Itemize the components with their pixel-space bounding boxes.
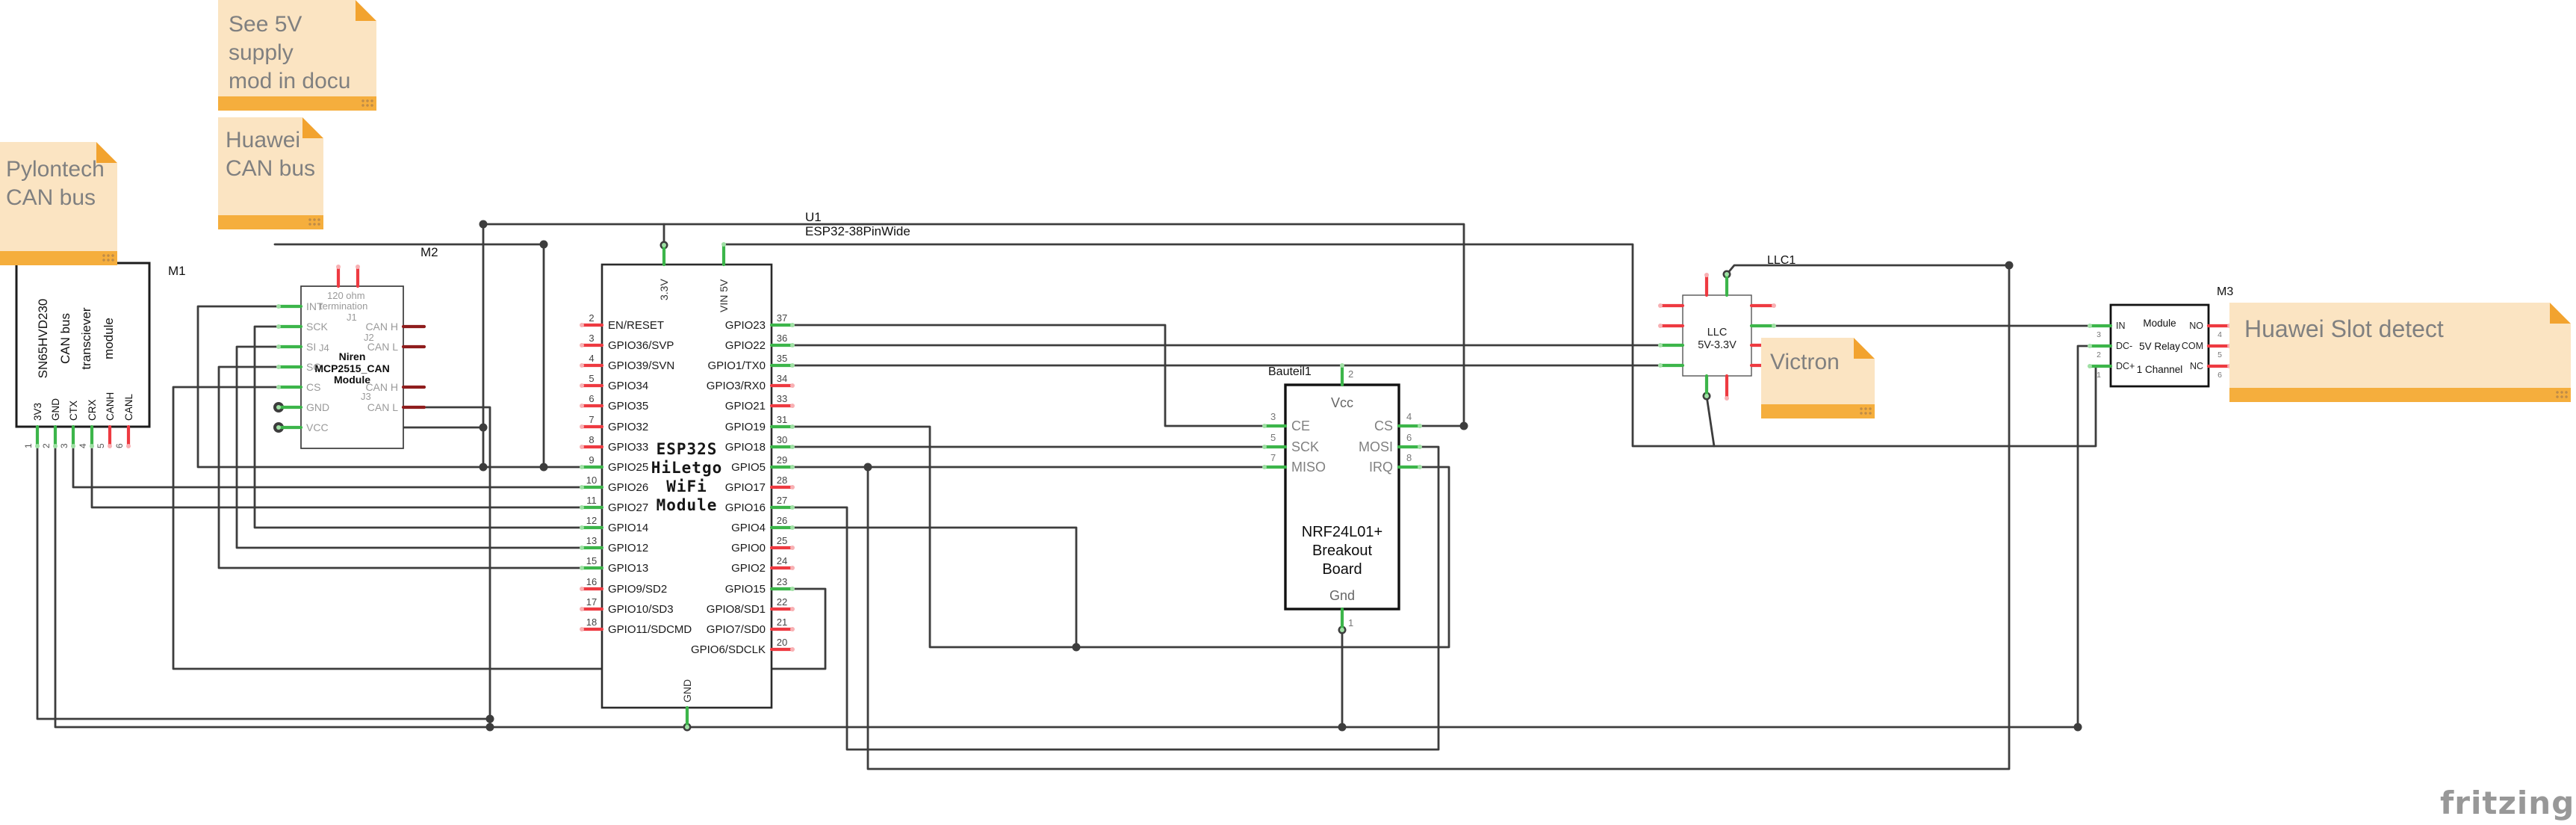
u1-pin-label: GPIO1/TX0 <box>707 359 766 372</box>
resize-grip-icon[interactable] <box>102 253 114 263</box>
u1-pin-label: GPIO2 <box>731 562 766 575</box>
pin-cap <box>35 444 40 448</box>
pin-cap <box>580 485 584 489</box>
wire-junction[interactable] <box>479 463 488 472</box>
u1-title: ESP32S HiLetgo WiFi Module <box>602 440 772 515</box>
u1-designator[interactable]: U1 <box>805 210 822 225</box>
pin-cap <box>1658 343 1663 347</box>
pin-cap <box>790 485 795 489</box>
pin-cap <box>356 265 360 269</box>
m3-designator[interactable]: M3 <box>2217 285 2233 299</box>
pin-cap <box>580 627 584 631</box>
m2-j1-label: J1 <box>347 312 357 323</box>
wire-junction[interactable] <box>864 463 872 472</box>
m1-pin-number: 2 <box>41 443 52 448</box>
pin-cap <box>790 404 795 408</box>
note-slot-detect-text: Huawei Slot detect <box>2229 303 2571 355</box>
pin-cap <box>790 546 795 550</box>
u1-pin-label: GPIO9/SD2 <box>608 583 667 596</box>
u1-pin-label: VIN 5V <box>718 279 730 312</box>
pin-cap <box>1725 396 1729 401</box>
pin-cap <box>1772 324 1776 328</box>
pin-cap <box>580 607 584 611</box>
u1-pin-number: 2 <box>589 312 594 324</box>
pin-cap <box>53 444 58 448</box>
nrf-pin-label: MOSI <box>1359 439 1393 454</box>
pin-cap <box>580 525 584 530</box>
pin-cap <box>790 627 795 631</box>
pin-cap <box>276 425 281 430</box>
m3-pin-number: 5 <box>2217 350 2222 359</box>
u1-pin-number: 22 <box>777 596 787 608</box>
u1-pin-number: 31 <box>777 414 787 425</box>
wire-junction[interactable] <box>2005 262 2014 270</box>
m2-termination-label: termination <box>320 300 367 312</box>
pin-cap <box>580 566 584 570</box>
pin-cap <box>2088 364 2092 368</box>
pin-cap <box>790 424 795 429</box>
u1-pin-number: 9 <box>589 454 594 466</box>
resize-grip-icon[interactable] <box>308 217 320 227</box>
pin-cap <box>1772 303 1776 308</box>
note-bar <box>0 251 117 265</box>
nrf-designator[interactable]: Bauteil1 <box>1268 365 1312 379</box>
u1-pin-label: GPIO34 <box>608 380 648 392</box>
nrf-title: NRF24L01+ Breakout Board <box>1285 523 1399 579</box>
m2-termination-value: 120 ohm <box>327 290 365 301</box>
u1-pin-number: 20 <box>777 637 787 648</box>
m1-pin-label: CANL <box>123 393 134 421</box>
wire-junction[interactable] <box>486 715 494 723</box>
pin-cap <box>580 343 584 347</box>
u1-pin-label: GPIO23 <box>725 319 766 332</box>
m1-pin-number: 1 <box>23 443 34 448</box>
u1-pin-label: GPIO36/SVP <box>608 339 674 352</box>
m1-pin-number: 4 <box>78 443 88 448</box>
pin-cap <box>276 385 281 389</box>
pin-cap <box>580 363 584 368</box>
pin-cap <box>1658 363 1663 368</box>
wire[interactable] <box>92 446 582 507</box>
nrf-pin-label: SCK <box>1291 439 1319 454</box>
nrf-pin-label: Gnd <box>1329 588 1355 603</box>
pin-cap <box>336 265 341 269</box>
pin-cap <box>790 647 795 652</box>
note-victron[interactable]: Victron <box>1761 338 1875 418</box>
pin-cap <box>276 344 281 349</box>
u1-pin-label: GPIO22 <box>725 339 766 352</box>
pin-cap <box>580 323 584 327</box>
m1-pin-number: 6 <box>114 443 125 448</box>
u1-pin-label: GPIO4 <box>731 522 766 534</box>
pin-cap <box>580 383 584 388</box>
note-supply-text: See 5V supply mod in docu <box>218 0 376 106</box>
pin-cap <box>790 525 795 530</box>
pin-cap <box>790 465 795 469</box>
fritzing-logo: fritzing <box>2440 785 2575 821</box>
pin-cap <box>790 383 795 388</box>
wire-junction[interactable] <box>486 723 494 732</box>
u1-pin-number: 3 <box>589 333 594 344</box>
pin-cap <box>108 444 112 448</box>
u1-pin-number: 29 <box>777 454 787 466</box>
pin-cap <box>1418 445 1422 449</box>
u1-pin-number: 37 <box>777 312 787 324</box>
pin-cap <box>790 505 795 510</box>
pin-cap <box>1340 628 1344 632</box>
pin-cap <box>790 607 795 611</box>
pin-cap <box>1418 424 1422 428</box>
pin-cap <box>790 445 795 449</box>
u1-pin-number: 8 <box>589 434 594 445</box>
nrf-pin-number: 8 <box>1406 452 1412 463</box>
u1-pin-number: 5 <box>589 373 594 384</box>
pin-cap <box>580 505 584 510</box>
m1-designator[interactable]: M1 <box>168 264 186 279</box>
resize-grip-icon[interactable] <box>2555 390 2568 400</box>
u1-pin-label: GPIO3/RX0 <box>707 380 766 392</box>
llc-designator[interactable]: LLC1 <box>1767 254 1796 268</box>
pin-cap <box>580 587 584 591</box>
pin-cap <box>790 343 795 347</box>
nrf-pin-number: 2 <box>1348 368 1353 380</box>
u1-pin-number: 23 <box>777 576 787 587</box>
nrf-pin-label: CS <box>1374 418 1393 433</box>
u1-pin-label: GPIO6/SDCLK <box>691 643 766 656</box>
pin-cap <box>1262 424 1267 428</box>
pin-cap <box>580 546 584 550</box>
u1-pin-number: 35 <box>777 353 787 364</box>
nrf-pin-label: Vcc <box>1331 395 1353 410</box>
pin-cap <box>276 304 281 309</box>
m2-part-name: Niren MCP2515_CAN Module <box>301 351 403 386</box>
pin-cap <box>790 323 795 327</box>
pin-cap <box>685 725 689 729</box>
note-bar <box>1761 404 1875 418</box>
nrf-pin-number: 4 <box>1406 411 1412 422</box>
m2-j3-label: J3 <box>361 391 371 402</box>
wire-junction[interactable] <box>1460 422 1468 430</box>
note-pylontech[interactable]: Pylontech CAN bus <box>0 142 117 265</box>
u1-pin-number: 7 <box>589 414 594 425</box>
pin-cap <box>721 242 726 247</box>
llc-title: LLC 5V-3.3V <box>1683 327 1751 352</box>
nrf-pin-number: 5 <box>1270 432 1276 443</box>
m2-designator[interactable]: M2 <box>420 245 438 260</box>
pin-cap <box>1340 363 1344 368</box>
m1-title-line4: module <box>102 268 117 410</box>
pin-cap <box>790 587 795 591</box>
u1-pin-label: 3.3V <box>658 279 670 300</box>
m2-j2-label: J2 <box>364 332 374 343</box>
pin-cap <box>790 566 795 570</box>
pin-cap <box>1418 465 1422 469</box>
nrf-pin-label: CE <box>1291 418 1310 433</box>
u1-pin-number: 28 <box>777 475 787 486</box>
note-slot-detect[interactable]: Huawei Slot detect <box>2229 303 2571 402</box>
note-bar <box>218 215 323 229</box>
u1-pin-label: GPIO13 <box>608 562 648 575</box>
u1-pin-label: GPIO35 <box>608 400 648 412</box>
u1-pin-number: 17 <box>586 596 597 608</box>
note-supply[interactable]: See 5V supply mod in docu <box>218 0 376 111</box>
m1-title-line3: transciever <box>79 268 94 410</box>
u1-pin-number: 12 <box>586 515 597 526</box>
m2-pin-label: CAN H <box>365 321 398 333</box>
pin-cap <box>276 365 281 369</box>
wire-junction[interactable] <box>540 241 548 249</box>
u1-pin-number: 34 <box>777 373 787 384</box>
u1-pin-number: 15 <box>586 555 597 566</box>
m1-title-line1: SN65HVD230 <box>36 268 51 410</box>
wire-junction[interactable] <box>479 220 488 229</box>
wire-junction[interactable] <box>2074 723 2082 732</box>
pin-cap <box>790 363 795 368</box>
pin-cap <box>580 404 584 408</box>
u1-part-name: ESP32-38PinWide <box>805 224 910 239</box>
u1-pin-number: 33 <box>777 393 787 404</box>
pin-cap <box>1262 465 1267 469</box>
resize-grip-icon[interactable] <box>361 99 373 108</box>
nrf-pin-number: 1 <box>1348 617 1353 628</box>
u1-pin-number: 25 <box>777 535 787 546</box>
pin-cap <box>580 465 584 469</box>
pin-cap <box>2088 344 2092 348</box>
pin-cap <box>1704 273 1709 277</box>
u1-pin-label: GPIO7/SD0 <box>707 623 766 636</box>
nrf-pin-label: IRQ <box>1369 460 1393 475</box>
m1-title-line2: CAN bus <box>58 268 73 410</box>
wire[interactable] <box>792 528 1076 647</box>
pin-cap <box>276 405 281 410</box>
u1-pin-label: EN/RESET <box>608 319 664 332</box>
pin-cap <box>90 444 94 448</box>
u1-pin-number: 21 <box>777 617 787 628</box>
wire-junction[interactable] <box>1338 723 1347 732</box>
u1-pin-number: 16 <box>586 576 597 587</box>
pin-cap <box>71 444 75 448</box>
u1-pin-number: 26 <box>777 515 787 526</box>
m2-pin-label: VCC <box>306 421 329 433</box>
u1-pin-number: 30 <box>777 434 787 445</box>
wire[interactable] <box>1707 396 1714 446</box>
wire[interactable] <box>792 325 1264 426</box>
note-bar <box>218 96 376 111</box>
m3-title: Module 5V Relay 1 Channel <box>2121 312 2198 381</box>
pin-cap <box>1658 303 1663 308</box>
m2-pin-label: GND <box>306 401 329 413</box>
m3-pin-number: 3 <box>2097 330 2101 339</box>
m3-pin-number: 2 <box>2097 350 2101 359</box>
pin-cap <box>580 424 584 429</box>
wire-junction[interactable] <box>540 463 548 472</box>
nrf-pin-number: 7 <box>1270 452 1276 463</box>
schematic-canvas: 3V31GND2CTX3CRX4CANH5CANL6INTSCKSISOCSGN… <box>0 0 2576 825</box>
u1-pin-number: 4 <box>589 353 594 364</box>
m2-pin-label: SCK <box>306 321 328 333</box>
m3-pin-number: 1 <box>2097 371 2101 380</box>
u1-pin-number: 36 <box>777 333 787 344</box>
m2-pin-label: CAN L <box>367 401 398 413</box>
u1-pin-number: 10 <box>586 475 597 486</box>
u1-pin-label: GPIO19 <box>725 421 766 433</box>
nrf-pin-number: 3 <box>1270 411 1276 422</box>
pin-cap <box>1658 324 1663 328</box>
pin-cap <box>1704 394 1709 398</box>
wire-junction[interactable] <box>479 424 488 432</box>
u1-pin-number: 13 <box>586 535 597 546</box>
pin-cap <box>662 243 666 247</box>
pin-cap <box>1725 272 1729 276</box>
u1-pin-label: GPIO0 <box>731 542 766 554</box>
u1-pin-label: GPIO8/SD1 <box>707 603 766 616</box>
u1-pin-number: 11 <box>586 495 597 506</box>
m3-pin-number: 4 <box>2217 330 2222 339</box>
resize-grip-icon[interactable] <box>1859 407 1872 416</box>
note-huawei-can[interactable]: Huawei CAN bus <box>218 117 323 229</box>
pin-cap <box>1262 445 1267 449</box>
pin-cap <box>126 444 131 448</box>
u1-pin-label: GPIO11/SDCMD <box>608 623 692 636</box>
wire-junction[interactable] <box>1073 643 1081 652</box>
u1-pin-number: 24 <box>777 555 787 566</box>
note-bar <box>2229 388 2571 402</box>
pin-cap <box>276 324 281 329</box>
u1-pin-label: GPIO32 <box>608 421 648 433</box>
u1-pin-number: 18 <box>586 617 597 628</box>
u1-pin-number: 27 <box>777 495 787 506</box>
u1-pin-label: GPIO12 <box>608 542 648 554</box>
m1-pin-number: 3 <box>59 443 69 448</box>
m3-pin-number: 6 <box>2217 371 2222 380</box>
schematic-svg: 3V31GND2CTX3CRX4CANH5CANL6INTSCKSISOCSGN… <box>0 0 2576 825</box>
wire[interactable] <box>237 347 582 548</box>
nrf-pin-number: 6 <box>1406 432 1412 443</box>
u1-pin-label: GPIO10/SD3 <box>608 603 674 616</box>
pin-cap <box>580 445 584 449</box>
u1-pin-label: GND <box>681 679 693 702</box>
pin-cap <box>2088 324 2092 328</box>
u1-pin-label: GPIO14 <box>608 522 648 534</box>
m1-pin-number: 5 <box>96 443 106 448</box>
u1-pin-label: GPIO21 <box>725 400 766 412</box>
u1-pin-number: 6 <box>589 393 594 404</box>
u1-pin-label: GPIO15 <box>725 583 766 596</box>
u1-pin-label: GPIO39/SVN <box>608 359 674 372</box>
nrf-pin-label: MISO <box>1291 460 1326 475</box>
